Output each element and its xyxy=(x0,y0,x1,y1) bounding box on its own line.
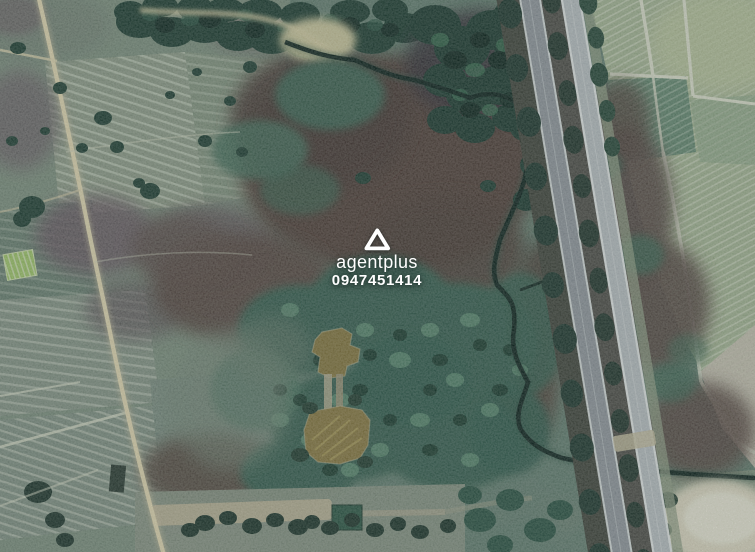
watermark: agentplus 0947451414 xyxy=(332,228,422,289)
satellite-image: agentplus 0947451414 xyxy=(0,0,755,552)
watermark-brand: agentplus xyxy=(336,253,418,272)
watermark-phone: 0947451414 xyxy=(332,272,422,289)
agentplus-triangle-logo xyxy=(364,228,391,251)
